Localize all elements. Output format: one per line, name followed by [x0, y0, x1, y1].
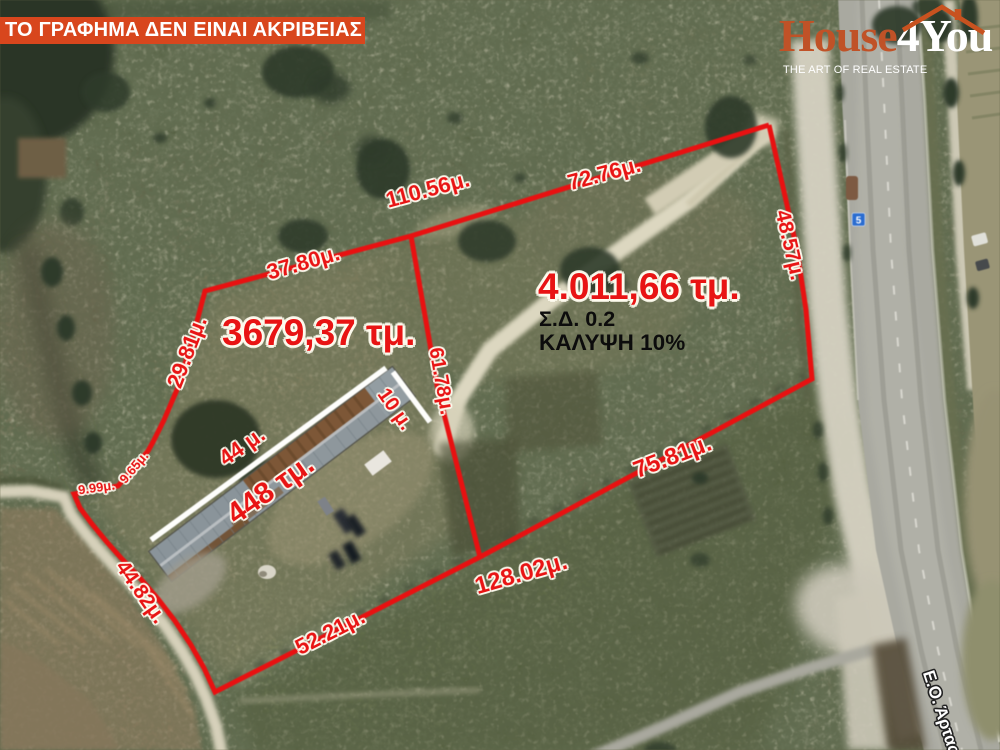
svg-text:5: 5	[856, 216, 862, 227]
